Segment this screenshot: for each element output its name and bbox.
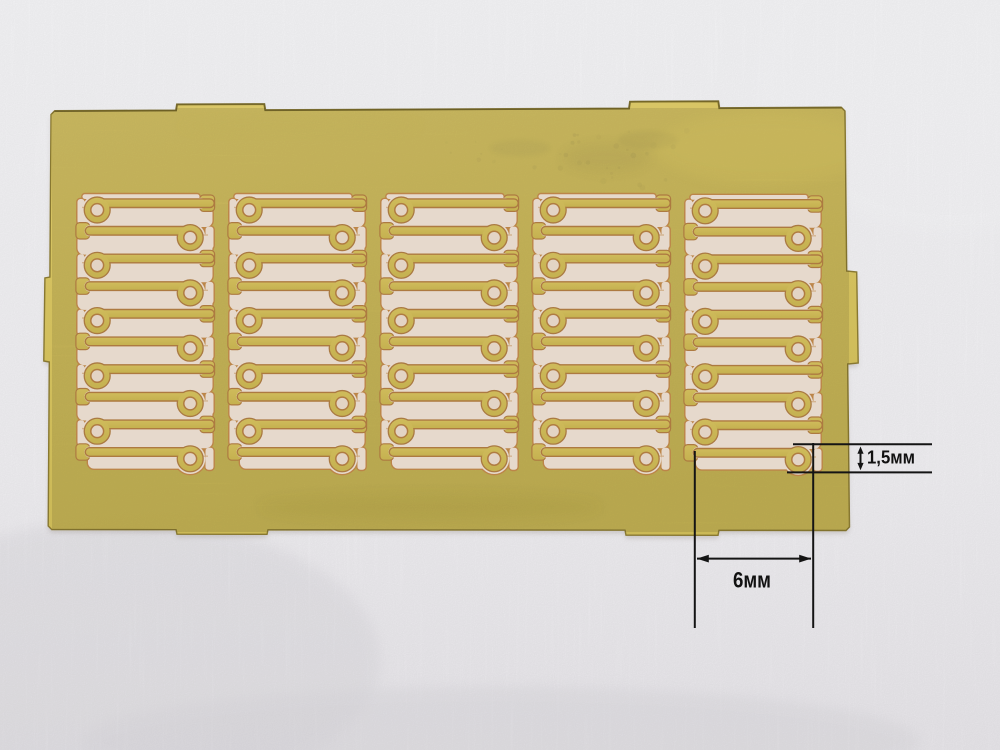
svg-text:6мм: 6мм	[733, 568, 771, 593]
svg-text:1,5мм: 1,5мм	[867, 448, 915, 468]
